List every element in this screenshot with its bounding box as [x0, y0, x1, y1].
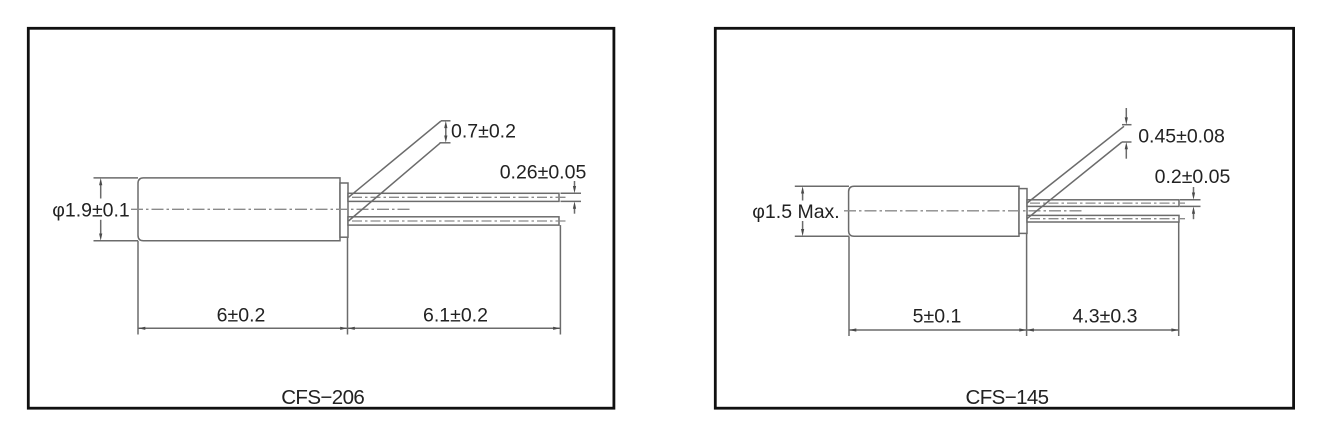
svg-text:5±0.1: 5±0.1	[913, 306, 962, 328]
svg-text:CFS−145: CFS−145	[966, 386, 1049, 409]
svg-text:CFS−206: CFS−206	[281, 386, 364, 409]
svg-text:0.2±0.05: 0.2±0.05	[1155, 166, 1231, 188]
svg-text:0.45±0.08: 0.45±0.08	[1138, 126, 1225, 148]
svg-text:0.26±0.05: 0.26±0.05	[500, 162, 587, 184]
svg-text:φ1.9±0.1: φ1.9±0.1	[52, 199, 130, 221]
svg-text:4.3±0.3: 4.3±0.3	[1073, 306, 1138, 328]
svg-text:6±0.2: 6±0.2	[217, 305, 266, 327]
svg-text:0.7±0.2: 0.7±0.2	[451, 120, 516, 142]
svg-text:φ1.5 Max.: φ1.5 Max.	[752, 201, 839, 223]
svg-text:6.1±0.2: 6.1±0.2	[423, 305, 488, 327]
